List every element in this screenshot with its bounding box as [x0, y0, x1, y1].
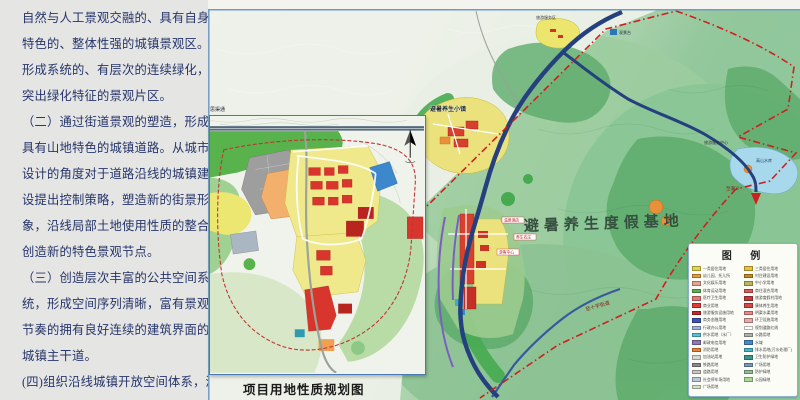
legend-color-swatch — [692, 281, 701, 286]
legend-label: 村庄建设用地 — [755, 273, 778, 279]
text-line: 特色的、整体性强的城镇景观区。 — [22, 31, 202, 57]
legend-color-swatch — [744, 348, 753, 353]
legend-row: 邮政电信用地 — [692, 339, 742, 346]
legend-row: 三类居住用地 — [744, 265, 794, 272]
legend-row: 中小学用地 — [744, 280, 794, 287]
legend-label: 道路用地 — [703, 369, 718, 375]
map-legend: 图 例 一类居住用地 幼儿园、托儿所 — [688, 243, 798, 397]
legend-color-swatch — [692, 377, 701, 382]
text-line: 形成系统的、有层次的连续绿化， — [22, 57, 202, 83]
legend-row: 公路用地 — [744, 332, 794, 339]
legend-row: 幼儿园、托儿所 — [692, 272, 742, 279]
legend-label: 旅游度假村用地 — [755, 296, 782, 302]
legend-label: 公园绿地 — [755, 377, 770, 383]
svg-text:游客中心: 游客中心 — [499, 250, 514, 255]
legend-row: 康体养生用地 — [744, 302, 794, 309]
legend-color-swatch — [744, 370, 753, 375]
viewpoint-marker — [610, 29, 617, 35]
legend-title: 图 例 — [696, 247, 794, 262]
svg-text:温泉酒店: 温泉酒店 — [504, 218, 519, 223]
legend-color-swatch — [744, 296, 753, 301]
legend-color-swatch — [744, 266, 753, 271]
legend-label: 水域 — [755, 340, 763, 346]
legend-label: 广场用地 — [703, 384, 718, 390]
legend-row: 村庄建设用地 — [744, 272, 794, 279]
legend-row: 商务金融用地 — [692, 317, 742, 324]
document-page: 自然与人工景观交融的、具有自身 特色的、整体性强的城镇景观区。 形成系统的、有层… — [0, 0, 800, 400]
service-center-label: 旅游服务中心 — [704, 139, 728, 145]
legend-label: 商住混合用地 — [755, 288, 778, 294]
left-text-panel: 自然与人工景观交融的、具有自身 特色的、整体性强的城镇景观区。 形成系统的、有层… — [0, 0, 208, 400]
legend-label: 商业用地 — [703, 303, 718, 309]
text-line: 自然与人工景观交融的、具有自身 — [22, 5, 202, 31]
legend-label: 供水用地（水厂） — [703, 332, 734, 338]
legend-row: 商住混合用地 — [744, 287, 794, 294]
legend-label: 社会停车场用地 — [703, 377, 730, 383]
legend-color-swatch — [744, 311, 753, 316]
legend-row: 广场用地 — [744, 361, 794, 368]
legend-color-swatch — [744, 318, 753, 323]
legend-color-swatch — [692, 266, 701, 271]
legend-color-swatch — [744, 340, 753, 345]
text-line: 节奏的拥有良好连续的建筑界面的 — [22, 317, 202, 343]
legend-row: 卫生防护绿地 — [744, 354, 794, 361]
legend-column-left: 一类居住用地 幼儿园、托儿所 文化娱乐用地 — [692, 265, 742, 391]
legend-color-swatch — [744, 274, 753, 279]
legend-color-swatch — [744, 377, 753, 382]
text-line: 统，形成空间序列清晰，富有景观 — [22, 291, 202, 317]
legend-row: 行政办公用地 — [692, 324, 742, 331]
legend-color-swatch — [744, 281, 753, 286]
legend-label: 卫生防护绿地 — [755, 355, 778, 361]
legend-row: 一类居住用地 — [692, 265, 742, 272]
facility-chip: 养生农庄 — [514, 234, 536, 240]
legend-row: 医疗卫生用地 — [692, 295, 742, 302]
legend-label: 康体养生用地 — [755, 303, 778, 309]
legend-color-swatch — [692, 355, 701, 360]
legend-label: 旅游服务设施用地 — [703, 310, 734, 316]
legend-row: 铁路用地 — [692, 361, 742, 368]
to-zunyi-label: 至遵义 — [726, 185, 740, 192]
legend-color-swatch — [692, 340, 701, 345]
legend-row: 社会停车场用地 — [692, 376, 742, 383]
facility-chip: 温泉酒店 — [502, 217, 524, 223]
legend-label: 广场用地 — [755, 362, 770, 368]
legend-color-swatch — [692, 363, 701, 368]
facility-chip: 游客中心 — [497, 249, 519, 255]
inset-corner-label: 思渠通 — [210, 106, 225, 113]
legend-color-swatch — [692, 333, 701, 338]
text-line: 城镇主干道。 — [22, 343, 202, 369]
legend-row: 文化娱乐用地 — [692, 280, 742, 287]
legend-color-swatch — [692, 385, 701, 390]
green-patch — [523, 174, 533, 184]
legend-label: 一类居住用地 — [703, 266, 726, 272]
legend-column-right: 三类居住用地 村庄建设用地 中小学用地 — [744, 265, 794, 391]
legend-row: 防护绿地 — [744, 368, 794, 375]
inset-caption: 项目用地性质规划图 — [243, 379, 365, 398]
legend-row: 公园绿地 — [744, 376, 794, 383]
text-line: 设提出控制策略，塑造新的街景形 — [22, 187, 202, 213]
legend-row: 旅游服务设施用地 — [692, 309, 742, 316]
text-line: (四)组织沿线城镇开放空间体系，满 — [22, 369, 202, 395]
viewpoint-label: 观景台 — [619, 29, 631, 35]
legend-color-swatch — [744, 333, 753, 338]
legend-color-swatch — [692, 318, 701, 323]
legend-row: 道路用地 — [692, 368, 742, 375]
legend-label: 行政办公用地 — [703, 325, 726, 331]
legend-label: 邮政电信用地 — [703, 340, 726, 346]
text-line: 突出绿化特征的景观片区。 — [22, 83, 202, 109]
legend-row: 供水用地（水厂） — [692, 332, 742, 339]
town-label: 避暑养生小镇 — [429, 105, 466, 113]
legend-color-swatch — [692, 289, 701, 294]
legend-label: 消防用地 — [703, 347, 718, 353]
legend-color-swatch — [692, 370, 701, 375]
legend-label: 中小学用地 — [755, 281, 774, 287]
legend-label: 体育运动用地 — [703, 288, 726, 294]
legend-color-swatch — [744, 303, 753, 308]
legend-color-swatch — [692, 326, 701, 331]
legend-row: 体育运动用地 — [692, 287, 742, 294]
legend-row: 明渠水渠用地 — [744, 309, 794, 316]
legend-label: 规划道路红线 — [755, 325, 778, 331]
legend-color-swatch — [692, 311, 701, 316]
text-line: 足人流集散、游憩观赏等活动需要 — [22, 395, 202, 400]
legend-row: 水域 — [744, 339, 794, 346]
legend-label: 加油站用地 — [703, 355, 722, 361]
legend-color-swatch — [692, 348, 701, 353]
legend-color-swatch — [692, 296, 701, 301]
legend-color-swatch — [692, 274, 701, 279]
green-patch — [501, 192, 515, 206]
legend-row: 广场用地 — [692, 383, 742, 390]
text-line: （三）创造层次丰富的公共空间系 — [22, 265, 202, 291]
legend-row: 加油站用地 — [692, 354, 742, 361]
inset-land-use-map — [209, 115, 426, 375]
legend-label: 商务金融用地 — [703, 318, 726, 324]
inset-map-canvas — [210, 116, 424, 373]
legend-color-swatch — [744, 326, 753, 331]
legend-label: 幼儿园、托儿所 — [703, 273, 730, 279]
legend-label: 文化娱乐用地 — [703, 281, 726, 287]
legend-row: 旅游度假村用地 — [744, 295, 794, 302]
legend-color-swatch — [744, 289, 753, 294]
legend-color-swatch — [744, 355, 753, 360]
text-line: 象，沿线局部土地使用性质的整合， — [22, 213, 202, 239]
legend-label: 环卫设施用地 — [755, 318, 778, 324]
legend-label: 明渠水渠用地 — [755, 310, 778, 316]
legend-row: 环卫设施用地 — [744, 317, 794, 324]
legend-label: 公路用地 — [755, 332, 770, 338]
legend-row: 规划道路红线 — [744, 324, 794, 331]
text-line: 创造新的特色景观节点。 — [22, 239, 202, 265]
legend-color-swatch — [692, 303, 701, 308]
legend-color-swatch — [744, 363, 753, 368]
legend-row: 消防用地 — [692, 346, 742, 353]
legend-label: 三类居住用地 — [755, 266, 778, 272]
legend-label: 防护绿地 — [755, 369, 770, 375]
legend-label: 排水用地(污水处理厂) — [755, 347, 792, 353]
legend-label: 医疗卫生用地 — [703, 296, 726, 302]
text-line: 设计的角度对于道路沿线的城镇建 — [22, 161, 202, 187]
junction-label: 旅游服务区 — [536, 14, 556, 20]
svg-text:养生农庄: 养生农庄 — [516, 235, 531, 240]
legend-row: 商业用地 — [692, 302, 742, 309]
text-line: （二）通过街道景观的塑造，形成 — [22, 109, 202, 135]
text-line: 具有山地特色的城镇道路。从城市 — [22, 135, 202, 161]
reservoir-label: 高山水库 — [756, 157, 772, 163]
legend-row: 排水用地(污水处理厂) — [744, 346, 794, 353]
inset-teal-parcel — [295, 329, 305, 337]
legend-label: 铁路用地 — [703, 362, 718, 368]
